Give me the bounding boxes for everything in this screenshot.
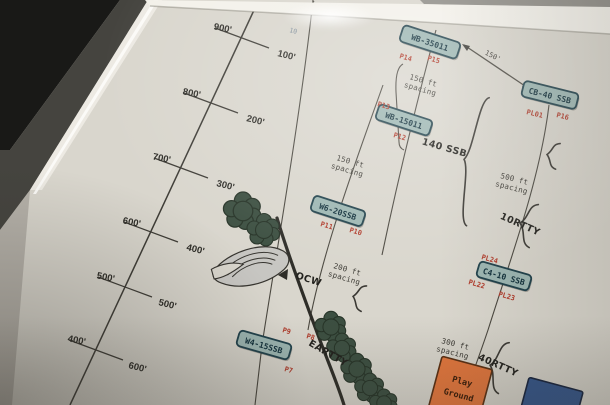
photo-of-diagram: 900' 800' 700' 600' 500' 400' 100' 200' … [0,0,610,405]
